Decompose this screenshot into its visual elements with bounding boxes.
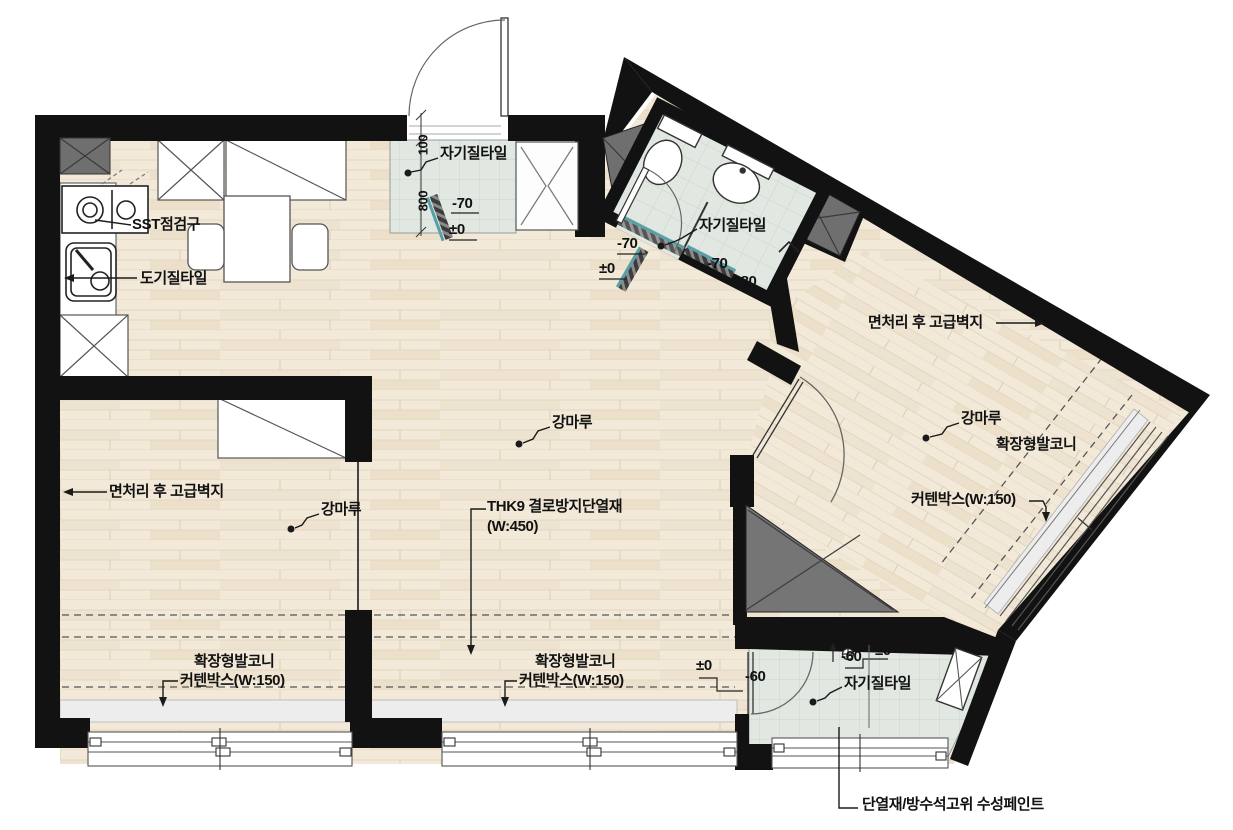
wardrobe-dining	[158, 140, 346, 200]
sink-icon	[66, 243, 116, 301]
shoe-closet	[516, 142, 578, 230]
wardrobe-left-room	[218, 398, 346, 458]
window-bottom-left	[88, 728, 352, 770]
stove-icon	[62, 186, 148, 233]
floor-plan: SST점검구도기질타일자기질타일100800-70±0-70±0자기질타일-70…	[0, 0, 1233, 830]
floor-plan-svg	[0, 0, 1233, 830]
chair-left	[188, 224, 224, 270]
chair-right	[292, 224, 328, 270]
window-bottom-center	[442, 728, 737, 770]
window-utility	[772, 734, 948, 772]
cabinet-below-sink	[60, 315, 128, 377]
duct-kitchen-corner	[60, 138, 110, 174]
entrance-door	[409, 18, 508, 134]
entry-tile	[390, 140, 516, 233]
